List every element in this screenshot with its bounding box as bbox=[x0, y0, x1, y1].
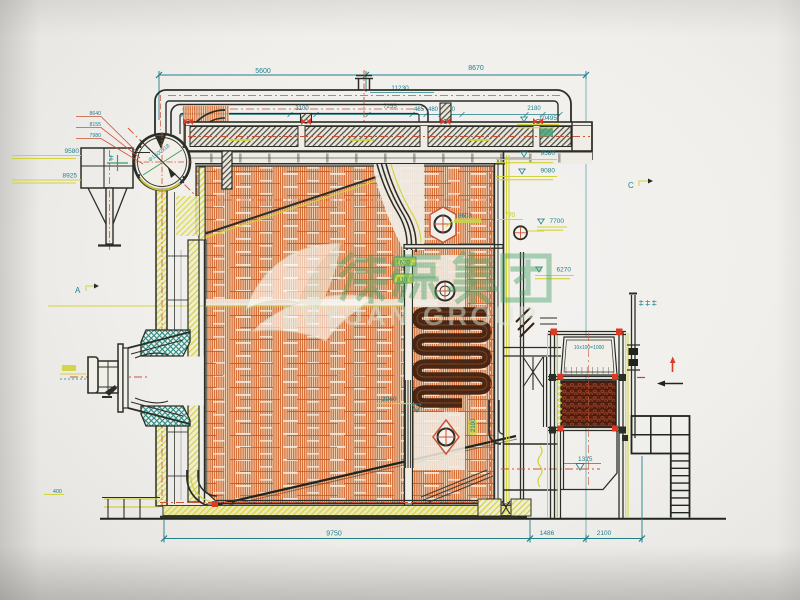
svg-text:2100: 2100 bbox=[597, 530, 612, 537]
svg-text:C: C bbox=[628, 181, 634, 190]
svg-text:9580: 9580 bbox=[65, 148, 80, 155]
svg-text:770: 770 bbox=[505, 213, 516, 219]
svg-text:8603: 8603 bbox=[458, 213, 472, 220]
svg-text:10495: 10495 bbox=[539, 115, 557, 122]
svg-text:2180: 2180 bbox=[527, 106, 541, 112]
svg-text:A: A bbox=[75, 286, 81, 295]
svg-text:11230: 11230 bbox=[391, 85, 409, 92]
svg-text:6270: 6270 bbox=[557, 267, 572, 274]
svg-text:485: 485 bbox=[414, 107, 425, 113]
svg-text:7700: 7700 bbox=[550, 218, 565, 225]
svg-text:10x100=1000: 10x100=1000 bbox=[574, 345, 605, 351]
svg-text:480: 480 bbox=[428, 107, 439, 113]
svg-text:5600: 5600 bbox=[255, 68, 271, 75]
svg-text:9750: 9750 bbox=[326, 531, 342, 538]
svg-text:9580: 9580 bbox=[541, 150, 556, 157]
svg-text:9080: 9080 bbox=[541, 168, 556, 175]
svg-text:8670: 8670 bbox=[468, 65, 484, 72]
svg-text:2100: 2100 bbox=[471, 418, 477, 432]
svg-text:LVYUAN GROUP: LVYUAN GROUP bbox=[282, 301, 540, 331]
svg-text:1315: 1315 bbox=[578, 456, 593, 463]
svg-text:1486: 1486 bbox=[540, 530, 555, 537]
svg-text:2960: 2960 bbox=[382, 396, 397, 403]
svg-text:8925: 8925 bbox=[63, 173, 78, 180]
